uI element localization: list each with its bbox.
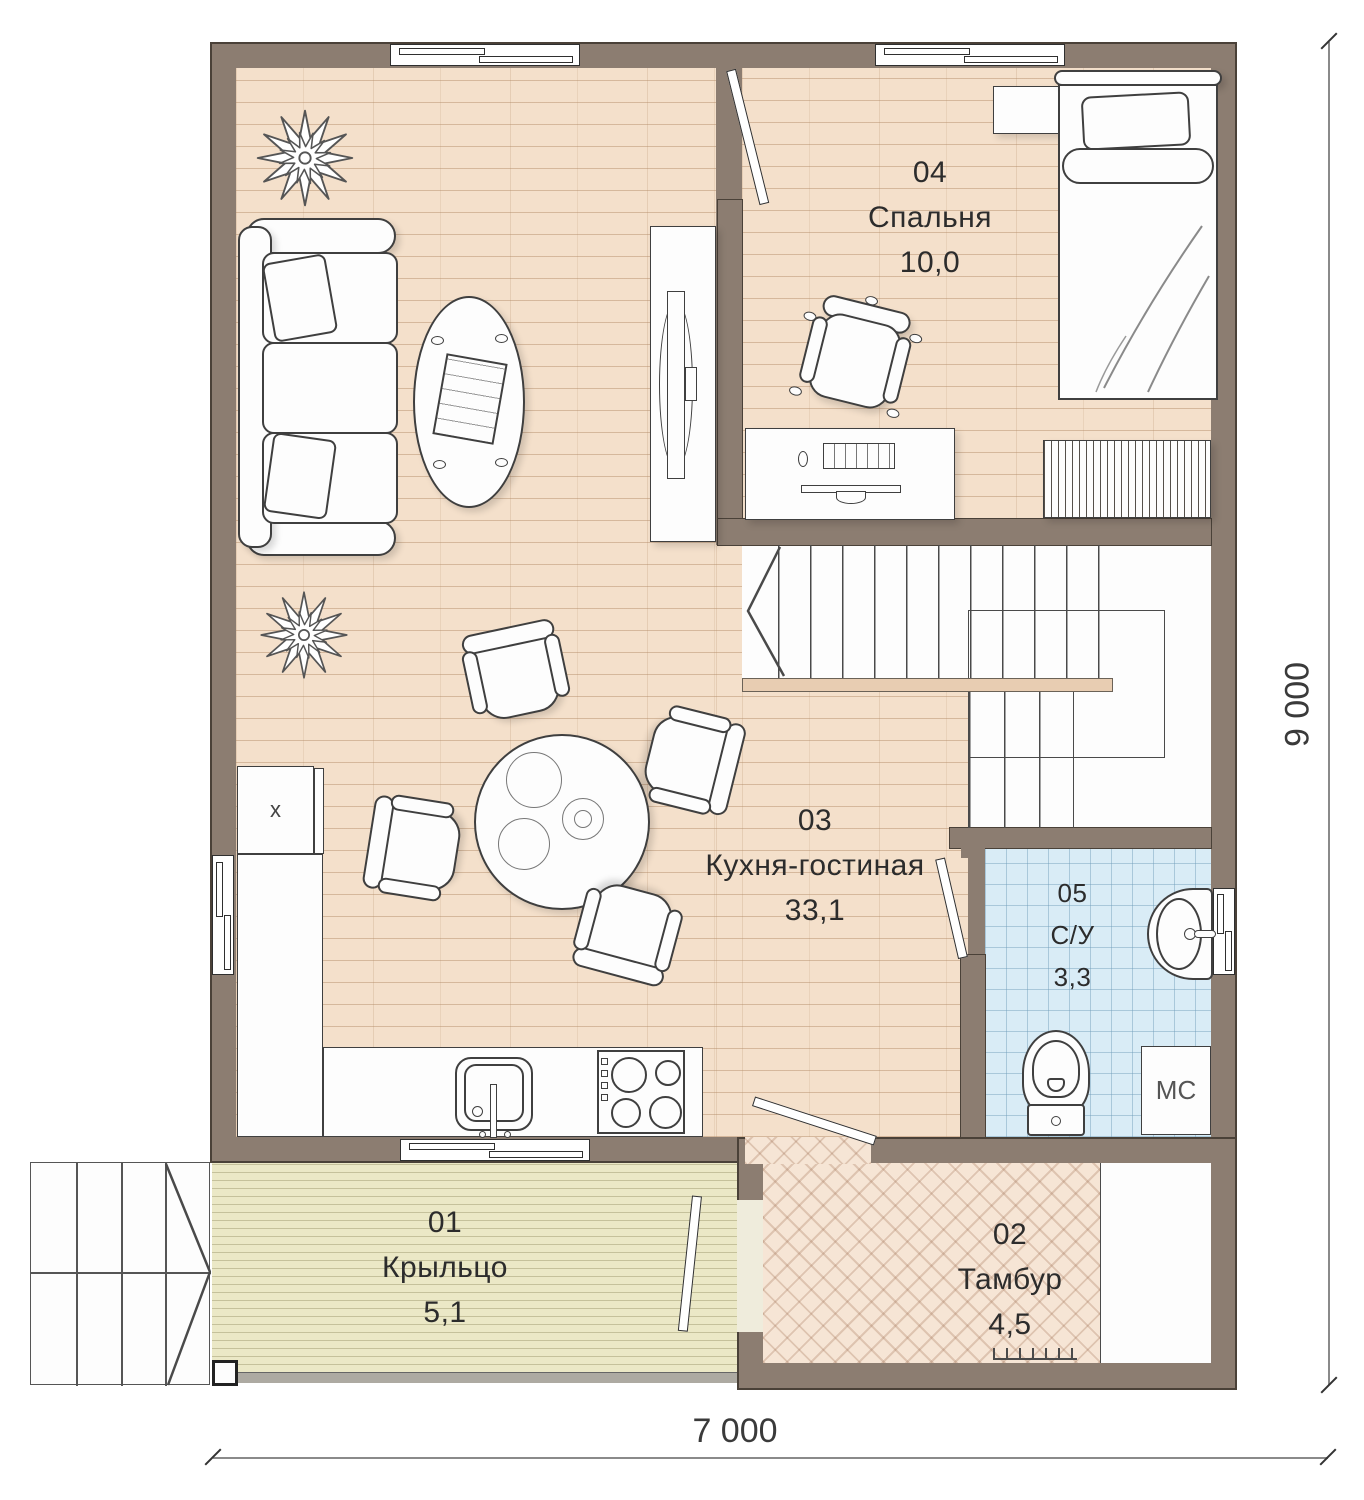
wall-bathroom-left xyxy=(961,955,985,1137)
kitchen-bottom-window xyxy=(400,1139,590,1161)
bathroom-window xyxy=(1213,888,1235,975)
door-opening-vestibule-porch xyxy=(737,1200,763,1332)
room-name: С/У xyxy=(1000,914,1145,956)
sofa-pillow xyxy=(262,253,339,343)
room-number: 01 xyxy=(330,1200,560,1245)
kitchen-counter-left xyxy=(237,854,323,1137)
porch-post xyxy=(212,1360,238,1386)
plant-icon xyxy=(257,588,351,682)
room-area: 33,1 xyxy=(640,888,990,933)
room-label-bedroom: 04 Спальня 10,0 xyxy=(830,150,1030,285)
plate xyxy=(498,818,550,870)
room-area: 3,3 xyxy=(1000,956,1145,998)
bed-blanket-folds xyxy=(1062,190,1214,396)
room-number: 04 xyxy=(830,150,1030,195)
room-label-vestibule: 02 Тамбур 4,5 xyxy=(895,1212,1125,1347)
room-label-kitchen-living: 03 Кухня-гостиная 33,1 xyxy=(640,798,990,933)
dimension-line-right xyxy=(1328,42,1330,1385)
dimension-line-bottom xyxy=(213,1457,1328,1459)
dining-chair xyxy=(459,617,573,731)
floor-plan: х xyxy=(0,0,1364,1500)
stairs-break-line-icon xyxy=(742,545,804,678)
stove xyxy=(597,1050,685,1134)
basin-tap xyxy=(1194,930,1216,938)
room-label-bathroom: 05 С/У 3,3 xyxy=(1000,872,1145,998)
dimension-label-bottom: 7 000 xyxy=(660,1412,810,1451)
washing-machine-label: МС xyxy=(1156,1075,1196,1106)
living-room-window xyxy=(390,44,580,66)
kitchen-cabinet-side xyxy=(314,768,324,854)
fridge-label: х xyxy=(270,797,281,823)
bed-blanket-roll xyxy=(1062,148,1214,184)
room-number: 03 xyxy=(640,798,990,843)
dining-chair xyxy=(361,793,471,903)
entry-steps xyxy=(30,1162,210,1385)
wall-living-bedroom xyxy=(718,200,742,519)
room-name: Кухня-гостиная xyxy=(640,843,990,888)
room-name: Спальня xyxy=(830,195,1030,240)
bedroom-window xyxy=(875,44,1065,66)
wall-bedroom-bottom xyxy=(718,519,1211,545)
room-area: 5,1 xyxy=(330,1290,560,1335)
room-label-porch: 01 Крыльцо 5,1 xyxy=(330,1200,560,1335)
keyboard xyxy=(823,443,895,469)
room-name: Тамбур xyxy=(895,1257,1125,1302)
magazine xyxy=(432,353,507,445)
fridge: х xyxy=(237,766,314,854)
room-name: Крыльцо xyxy=(330,1245,560,1290)
bed-pillow xyxy=(1081,91,1192,151)
washing-machine-box: МС xyxy=(1141,1046,1211,1135)
door-opening-kitchen-vestibule xyxy=(745,1137,871,1164)
plate xyxy=(506,752,562,808)
sofa-pillow xyxy=(263,432,338,520)
wardrobe-rack xyxy=(1043,440,1211,518)
faucet xyxy=(490,1084,497,1138)
kitchen-left-window xyxy=(212,855,234,975)
stairs-rail xyxy=(742,678,1113,692)
coffee-table xyxy=(413,296,525,508)
desk xyxy=(745,428,955,520)
room-number: 05 xyxy=(1000,872,1145,914)
porch-edge xyxy=(238,1372,737,1383)
mouse xyxy=(798,451,808,467)
room-area: 10,0 xyxy=(830,240,1030,285)
dimension-label-right: 9 000 xyxy=(1279,647,1318,763)
tv-stand xyxy=(650,226,716,542)
room-number: 02 xyxy=(895,1212,1125,1257)
plant-icon xyxy=(253,106,357,210)
steps-break-line-icon xyxy=(31,1163,211,1386)
room-area: 4,5 xyxy=(895,1302,1125,1347)
nightstand xyxy=(993,86,1061,134)
doormat xyxy=(993,1348,1077,1360)
